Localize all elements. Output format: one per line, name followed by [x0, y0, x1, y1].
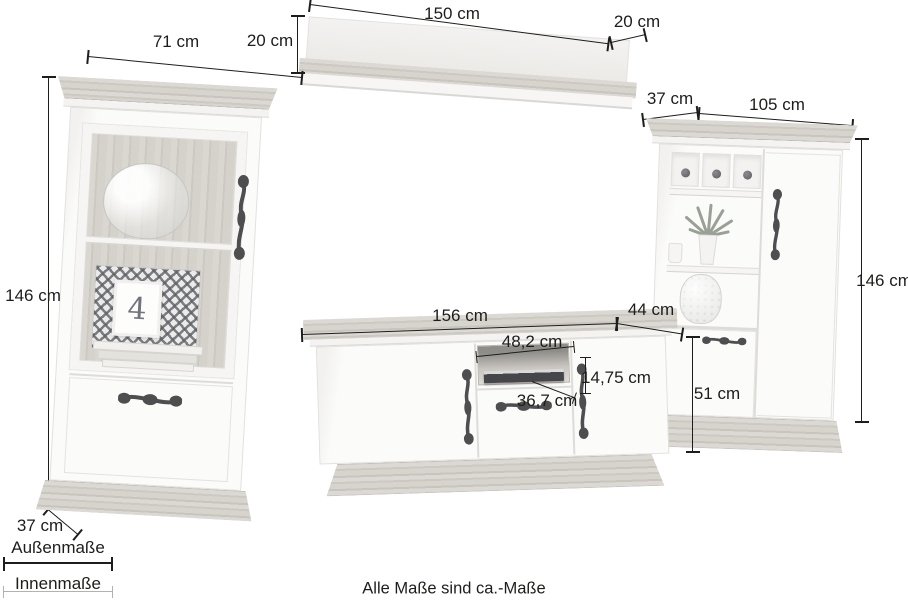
dim-label-niche-width: 48,2 cm [502, 332, 562, 352]
lowboard-left-door-handle [459, 367, 478, 447]
left-cabinet: 4 [34, 76, 278, 522]
product-dimension-diagram: 4 [0, 0, 908, 600]
right-cabinet-lower-handle [702, 334, 746, 348]
legend-inner-label: Innenmaße [15, 574, 101, 594]
dim-line-left-cabinet-width [88, 56, 302, 78]
footer-note: Alle Maße sind ca.-Maße [362, 580, 545, 599]
dim-label-wall-shelf-height: 20 cm [247, 31, 293, 51]
cup-decor [668, 243, 683, 263]
dim-label-niche-height: 14,75 cm [581, 368, 651, 388]
legend-outer-label: Außenmaße [11, 538, 105, 558]
plant-decor [677, 199, 739, 267]
right-cabinet-tall-door-handle [767, 188, 786, 261]
dim-line-wall-shelf-height [297, 16, 298, 73]
wall-shelf [297, 14, 640, 123]
legend-outer-line [4, 562, 112, 564]
dim-label-left-cabinet-height: 146 cm [5, 286, 61, 306]
dim-label-lowboard-depth: 44 cm [628, 300, 674, 320]
dim-label-lowboard-width: 156 cm [432, 306, 488, 326]
dvd-player-decor [484, 369, 564, 384]
tv-lowboard [303, 308, 683, 502]
vase-decor [679, 273, 723, 324]
dim-label-niche-depth: 36,7 cm [517, 391, 577, 411]
dim-label-wall-shelf-width: 150 cm [424, 4, 480, 24]
dim-label-left-cabinet-depth: 37 cm [17, 516, 63, 536]
dim-label-right-cabinet-height: 146 cm [856, 271, 908, 291]
dim-label-right-cabinet-depth: 37 cm [647, 89, 693, 109]
dim-label-lowboard-height: 51 cm [694, 384, 740, 404]
picture-frame-digit: 4 [127, 291, 148, 327]
picture-frame-decor: 4 [112, 279, 163, 338]
dim-label-wall-shelf-depth: 20 cm [614, 12, 660, 32]
dim-label-left-cabinet-width: 71 cm [153, 32, 199, 52]
dim-line-lowboard-height [692, 337, 693, 452]
dim-label-right-cabinet-width: 105 cm [749, 95, 805, 115]
